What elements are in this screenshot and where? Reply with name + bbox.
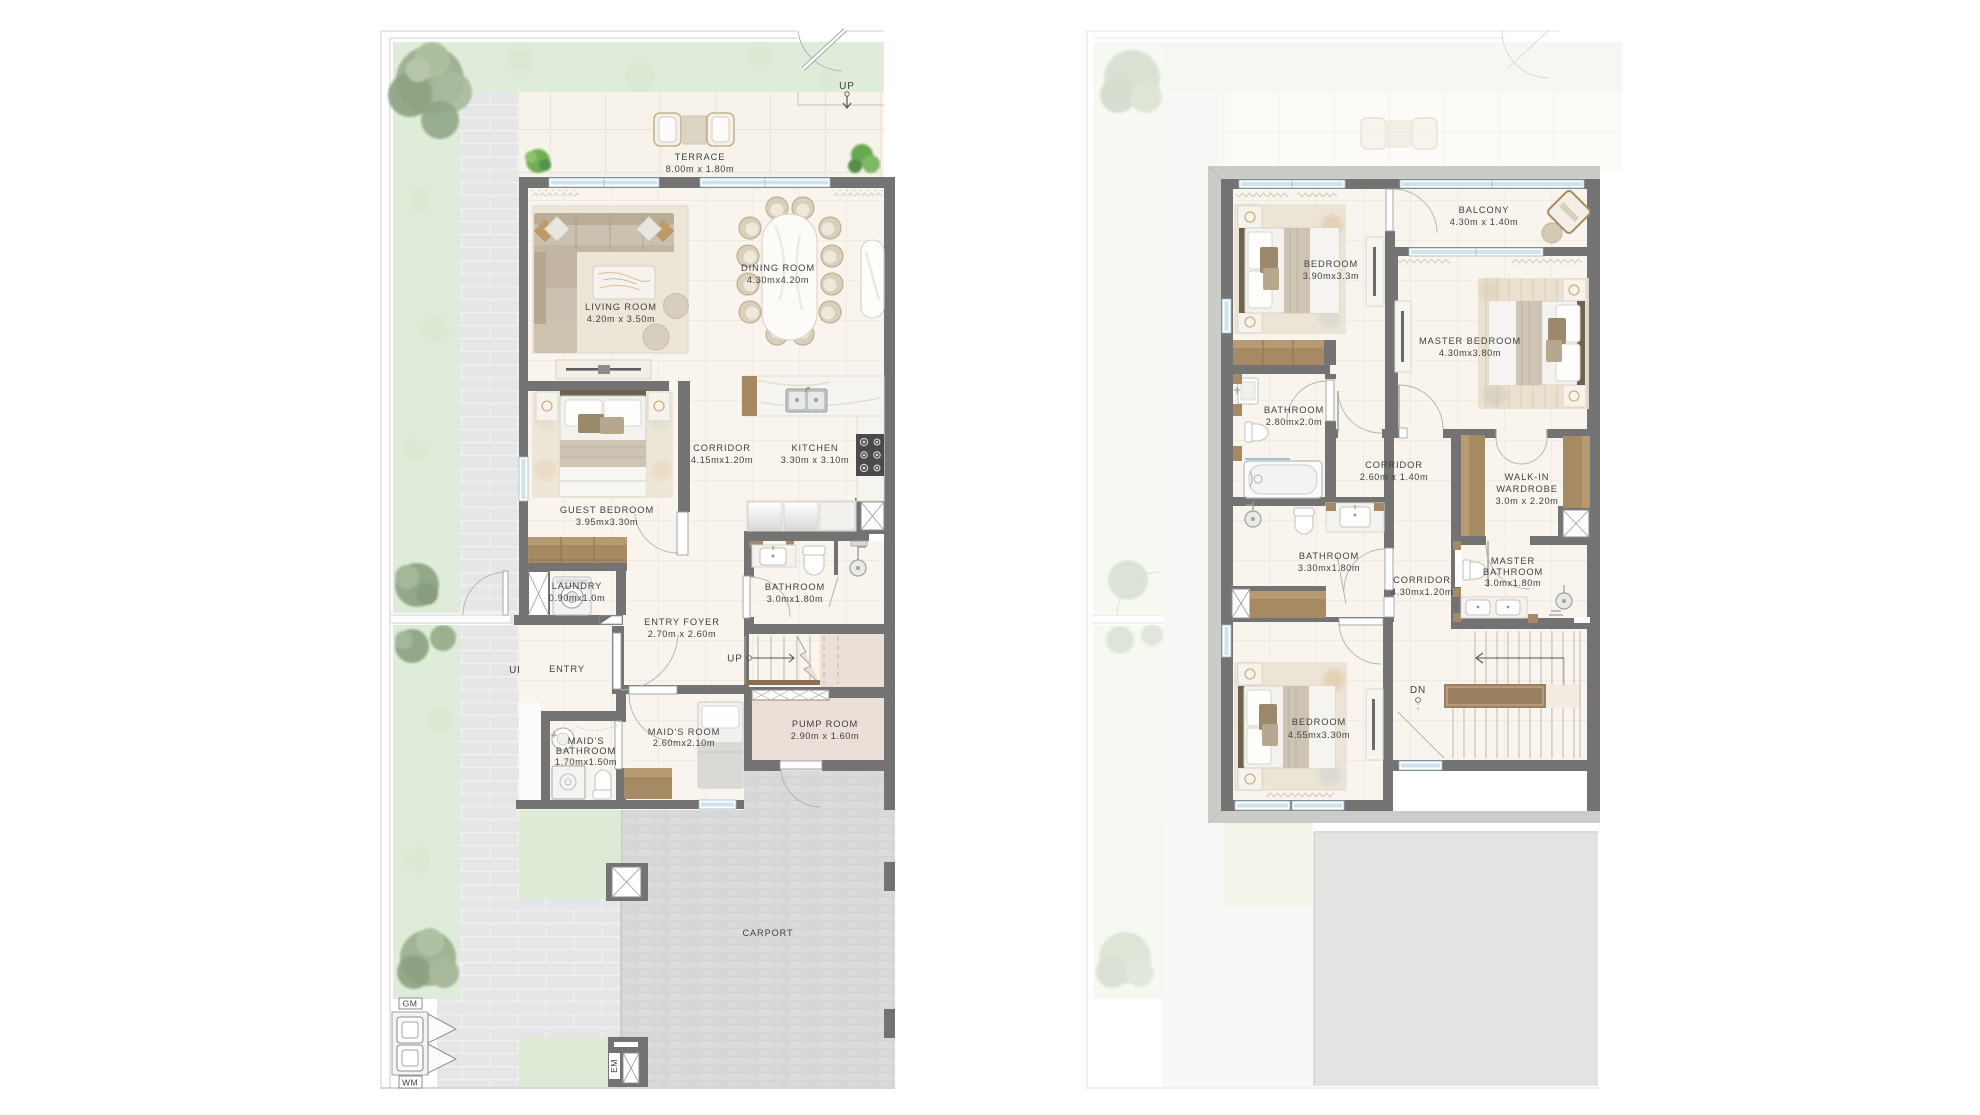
svg-text:3.0mx1.80m: 3.0mx1.80m — [1485, 578, 1542, 588]
svg-text:ENTRY: ENTRY — [549, 664, 585, 674]
svg-text:ENTRY FOYER: ENTRY FOYER — [644, 617, 720, 627]
svg-text:4.20m x 3.50m: 4.20m x 3.50m — [587, 314, 656, 324]
svg-text:UP: UP — [839, 81, 855, 92]
svg-text:LIVING ROOM: LIVING ROOM — [585, 302, 657, 312]
svg-text:BATHROOM: BATHROOM — [1264, 405, 1324, 415]
svg-text:BALCONY: BALCONY — [1459, 205, 1510, 215]
svg-text:KITCHEN: KITCHEN — [791, 443, 838, 453]
svg-text:MASTER: MASTER — [1491, 556, 1535, 566]
svg-text:4.30mx4.20m: 4.30mx4.20m — [747, 275, 809, 285]
svg-text:2.70m x 2.60m: 2.70m x 2.60m — [648, 629, 717, 639]
svg-text:CORRIDOR: CORRIDOR — [1365, 460, 1423, 470]
svg-text:3.95mx3.30m: 3.95mx3.30m — [576, 517, 638, 527]
svg-text:EM: EM — [609, 1059, 619, 1073]
svg-text:BATHROOM: BATHROOM — [765, 582, 825, 592]
svg-text:UP: UP — [727, 654, 743, 665]
svg-text:3.30mx1.80m: 3.30mx1.80m — [1298, 563, 1360, 573]
svg-text:BATHROOM: BATHROOM — [1483, 567, 1543, 577]
svg-text:2.60m x 1.40m: 2.60m x 1.40m — [1360, 472, 1429, 482]
svg-text:2.80mx2.0m: 2.80mx2.0m — [1266, 417, 1323, 427]
svg-text:3.30m x 3.10m: 3.30m x 3.10m — [781, 455, 850, 465]
svg-text:BEDROOM: BEDROOM — [1292, 717, 1346, 727]
svg-text:MAID'S ROOM: MAID'S ROOM — [648, 727, 721, 737]
svg-text:MAID'S: MAID'S — [568, 736, 605, 746]
svg-text:3.0m x 2.20m: 3.0m x 2.20m — [1496, 496, 1559, 506]
svg-text:GM: GM — [403, 999, 418, 1009]
svg-text:MASTER BEDROOM: MASTER BEDROOM — [1419, 336, 1521, 346]
svg-text:GUEST BEDROOM: GUEST BEDROOM — [560, 505, 654, 515]
svg-text:BATHROOM: BATHROOM — [1299, 551, 1359, 561]
svg-text:2.60mx2.10m: 2.60mx2.10m — [653, 738, 715, 748]
svg-text:LAUNDRY: LAUNDRY — [552, 581, 603, 591]
svg-text:PUMP ROOM: PUMP ROOM — [792, 719, 858, 729]
svg-text:BEDROOM: BEDROOM — [1304, 259, 1358, 269]
svg-text:2.90m x 1.60m: 2.90m x 1.60m — [791, 731, 860, 741]
svg-text:4.15mx1.20m: 4.15mx1.20m — [691, 455, 753, 465]
svg-text:8.00m x 1.80m: 8.00m x 1.80m — [666, 164, 735, 174]
svg-text:4.30mx1.20m: 4.30mx1.20m — [1391, 587, 1453, 597]
svg-text:4.30m x 1.40m: 4.30m x 1.40m — [1450, 217, 1519, 227]
svg-text:TERRACE: TERRACE — [675, 152, 726, 162]
svg-text:CORRIDOR: CORRIDOR — [693, 443, 751, 453]
svg-text:CARPORT: CARPORT — [742, 928, 793, 938]
svg-text:CORRIDOR: CORRIDOR — [1393, 575, 1451, 585]
svg-text:0.90mx1.0m: 0.90mx1.0m — [549, 593, 606, 603]
svg-text:4.55mx3.30m: 4.55mx3.30m — [1288, 730, 1350, 740]
svg-text:WM: WM — [402, 1078, 418, 1088]
svg-text:1.70mx1.50m: 1.70mx1.50m — [555, 757, 617, 767]
svg-text:4.30mx3.80m: 4.30mx3.80m — [1439, 348, 1501, 358]
svg-text:3.0mx1.80m: 3.0mx1.80m — [767, 594, 824, 604]
svg-text:DN: DN — [1410, 685, 1426, 696]
svg-text:WARDROBE: WARDROBE — [1496, 484, 1558, 494]
svg-text:3.90mx3.3m: 3.90mx3.3m — [1303, 271, 1360, 281]
svg-text:BATHROOM: BATHROOM — [556, 746, 616, 756]
svg-text:DINING ROOM: DINING ROOM — [741, 263, 815, 273]
svg-text:WALK-IN: WALK-IN — [1505, 472, 1550, 482]
